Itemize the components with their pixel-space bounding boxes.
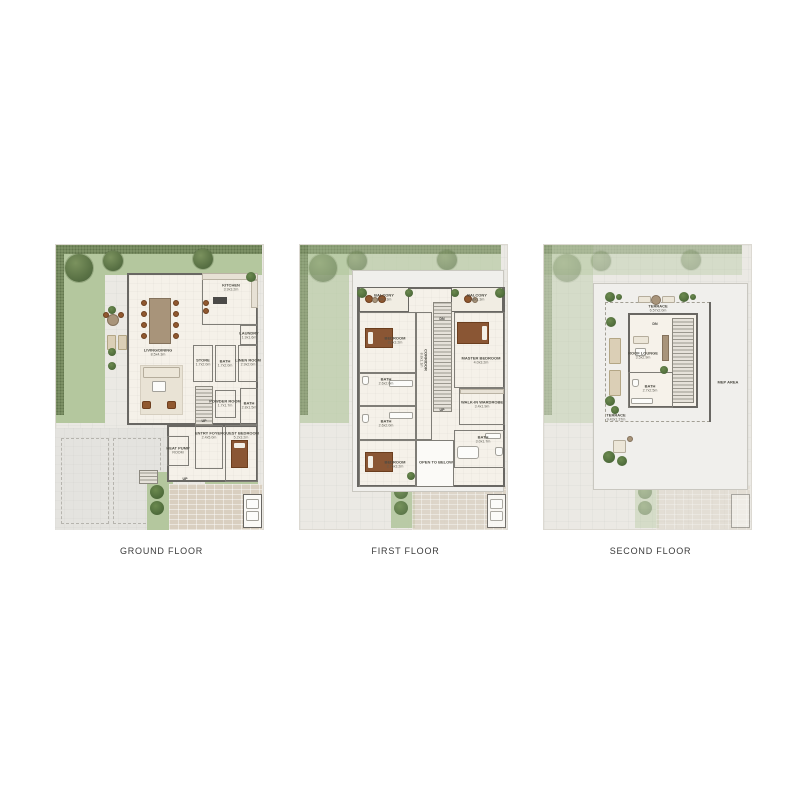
master-bedroom-label: MASTER BEDROOM4.0x3.2m	[462, 355, 501, 364]
wall	[709, 302, 711, 422]
entry-foyer-label: ENTRY FOYER2.4x5.0m	[195, 430, 223, 439]
bathtub	[457, 446, 479, 459]
bath-label: BATH2.8x1.5m	[242, 400, 257, 409]
sofa	[143, 367, 180, 378]
bush-icon	[616, 294, 622, 300]
living-dining-label: LIVING/DINING8.5x4.3m	[144, 347, 172, 356]
bath-label: BATH2.7x2.5m	[643, 383, 658, 392]
bath-label: BATH2.6x2.0m	[379, 376, 394, 385]
bath-label: BATH1.7x2.0m	[218, 358, 233, 367]
bush-icon	[605, 396, 615, 406]
sun-lounger	[609, 338, 621, 364]
dn-marker: DN	[652, 322, 657, 326]
chair	[173, 333, 179, 339]
hedge-strip	[544, 245, 552, 415]
up-marker: UP	[440, 408, 445, 412]
bush-icon	[357, 288, 367, 298]
corridor-label: CORRIDOR8.8x1.1m	[419, 349, 428, 371]
bed	[231, 440, 248, 468]
floor-plans-page: LIVING/DINING8.5x4.3mKITCHEN3.9x3.2mLAUN…	[0, 0, 800, 800]
room-outline	[416, 312, 432, 440]
dn-marker: DN	[439, 317, 444, 321]
bush-icon	[660, 366, 668, 374]
bush-icon	[605, 292, 615, 302]
hedge-strip	[544, 245, 742, 254]
tree-icon	[681, 250, 701, 270]
balcony-label: BALCONY2.9x1.3m	[374, 292, 394, 301]
chair	[141, 322, 147, 328]
toilet	[495, 447, 503, 456]
bedroom-label: BEDROOM3.75x3.2m	[385, 459, 406, 468]
armchair	[167, 401, 176, 409]
balcony-label: BALCONY1.8x1.3m	[467, 292, 487, 301]
chair	[141, 311, 147, 317]
up-marker: UP	[202, 419, 207, 423]
sofa	[613, 440, 626, 453]
bush-icon	[150, 485, 164, 499]
chair	[203, 308, 209, 314]
fixture	[246, 499, 259, 509]
second-floor-title: SECOND FLOOR	[543, 546, 758, 556]
fixture	[631, 398, 653, 404]
terrace-label: TERRACE9.43x1.37m	[606, 412, 625, 421]
counter	[251, 280, 258, 308]
kitchen-label: KITCHEN3.9x3.2m	[222, 282, 240, 291]
bush-icon	[394, 501, 408, 515]
sofa	[633, 336, 649, 344]
sun-lounger	[609, 370, 621, 396]
bedroom-label: BEDROOM3.8x3.2m	[385, 335, 406, 344]
up-marker: UP	[183, 477, 188, 481]
bush-icon	[150, 501, 164, 515]
sofa	[662, 296, 675, 303]
tree-icon	[65, 254, 93, 282]
bath-label: BATH3.0x1.7m	[476, 434, 491, 443]
hedge-strip	[56, 245, 64, 415]
bed	[457, 322, 489, 344]
laundry-label: LAUNDRY1.9x1.6m	[239, 330, 258, 339]
bush-icon	[108, 362, 116, 370]
chair	[103, 312, 109, 318]
parking-bay	[61, 438, 109, 524]
bush-icon	[108, 306, 116, 314]
tree-icon	[347, 251, 367, 271]
hedge-strip	[300, 245, 501, 254]
tree-icon	[437, 250, 457, 270]
chair	[141, 300, 147, 306]
round-table	[627, 436, 633, 442]
heat-pump-label: HEAT PUMPROOM	[166, 445, 189, 454]
bush-icon	[495, 288, 505, 298]
dining-table	[662, 335, 669, 361]
fixture	[490, 499, 503, 509]
store-label: STORE1.7x2.0m	[196, 357, 211, 366]
bush-icon	[246, 272, 256, 282]
hedge-strip	[300, 245, 308, 415]
chair	[173, 300, 179, 306]
ground-floor-plan: LIVING/DINING8.5x4.3mKITCHEN3.9x3.2mLAUN…	[55, 240, 268, 530]
dining-table	[149, 298, 171, 344]
chair	[173, 322, 179, 328]
linen-room-label: LINEN ROOM2.9x2.0m	[235, 357, 261, 366]
bush-icon	[606, 317, 616, 327]
open-to-below-label: OPEN TO BELOW	[419, 460, 453, 465]
roof-lounge-label: ROOF LOUNGE3.5x2.9m	[628, 350, 658, 359]
tree-icon	[309, 254, 337, 282]
sofa	[638, 296, 651, 303]
tree-icon	[591, 251, 611, 271]
bush-icon	[617, 456, 627, 466]
counter	[460, 389, 504, 394]
chair	[118, 312, 124, 318]
bath-label: BATH2.6x2.0m	[379, 418, 394, 427]
first-floor-plan: BALCONY2.9x1.3mBALCONY1.8x1.3mBEDROOM3.8…	[299, 240, 512, 530]
second-floor-plan: TERRACE6.57x2.0mROOF LOUNGE3.5x2.9mBATH2…	[543, 240, 758, 530]
sun-lounger	[118, 335, 127, 350]
bush-icon	[638, 501, 652, 515]
utility-structure	[731, 494, 750, 528]
bush-icon	[108, 348, 116, 356]
tree-icon	[103, 251, 123, 271]
fixture	[246, 511, 259, 521]
kitchen-island	[213, 297, 227, 304]
toilet	[362, 376, 369, 385]
armchair	[142, 401, 151, 409]
bush-icon	[407, 472, 415, 480]
bush-icon	[603, 451, 615, 463]
bush-icon	[451, 289, 459, 297]
ground-floor-title: GROUND FLOOR	[55, 546, 268, 556]
first-floor-title: FIRST FLOOR	[299, 546, 512, 556]
terrace-label: TERRACE6.57x2.0m	[648, 303, 667, 312]
tree-icon	[553, 254, 581, 282]
chair	[203, 300, 209, 306]
staircase	[139, 470, 158, 484]
powder-room-label: POWDER ROOM1.7x1.7m	[209, 398, 241, 407]
staircase	[672, 318, 694, 403]
chair	[141, 333, 147, 339]
guest-bedroom-label: GUEST BEDROOM5.2x3.2m	[223, 430, 259, 439]
tree-icon	[193, 249, 213, 269]
mep-area-label: MEP AREA	[718, 380, 739, 385]
toilet	[632, 379, 639, 387]
fixture	[152, 381, 166, 392]
bush-icon	[690, 294, 696, 300]
bush-icon	[405, 289, 413, 297]
fixture	[490, 511, 503, 521]
toilet	[362, 414, 369, 423]
hedge-strip	[56, 245, 262, 254]
chair	[173, 311, 179, 317]
walk-in-wardrobe-label: WALK-IN WARDROBE3.4x1.9m	[461, 399, 503, 408]
bush-icon	[679, 292, 689, 302]
